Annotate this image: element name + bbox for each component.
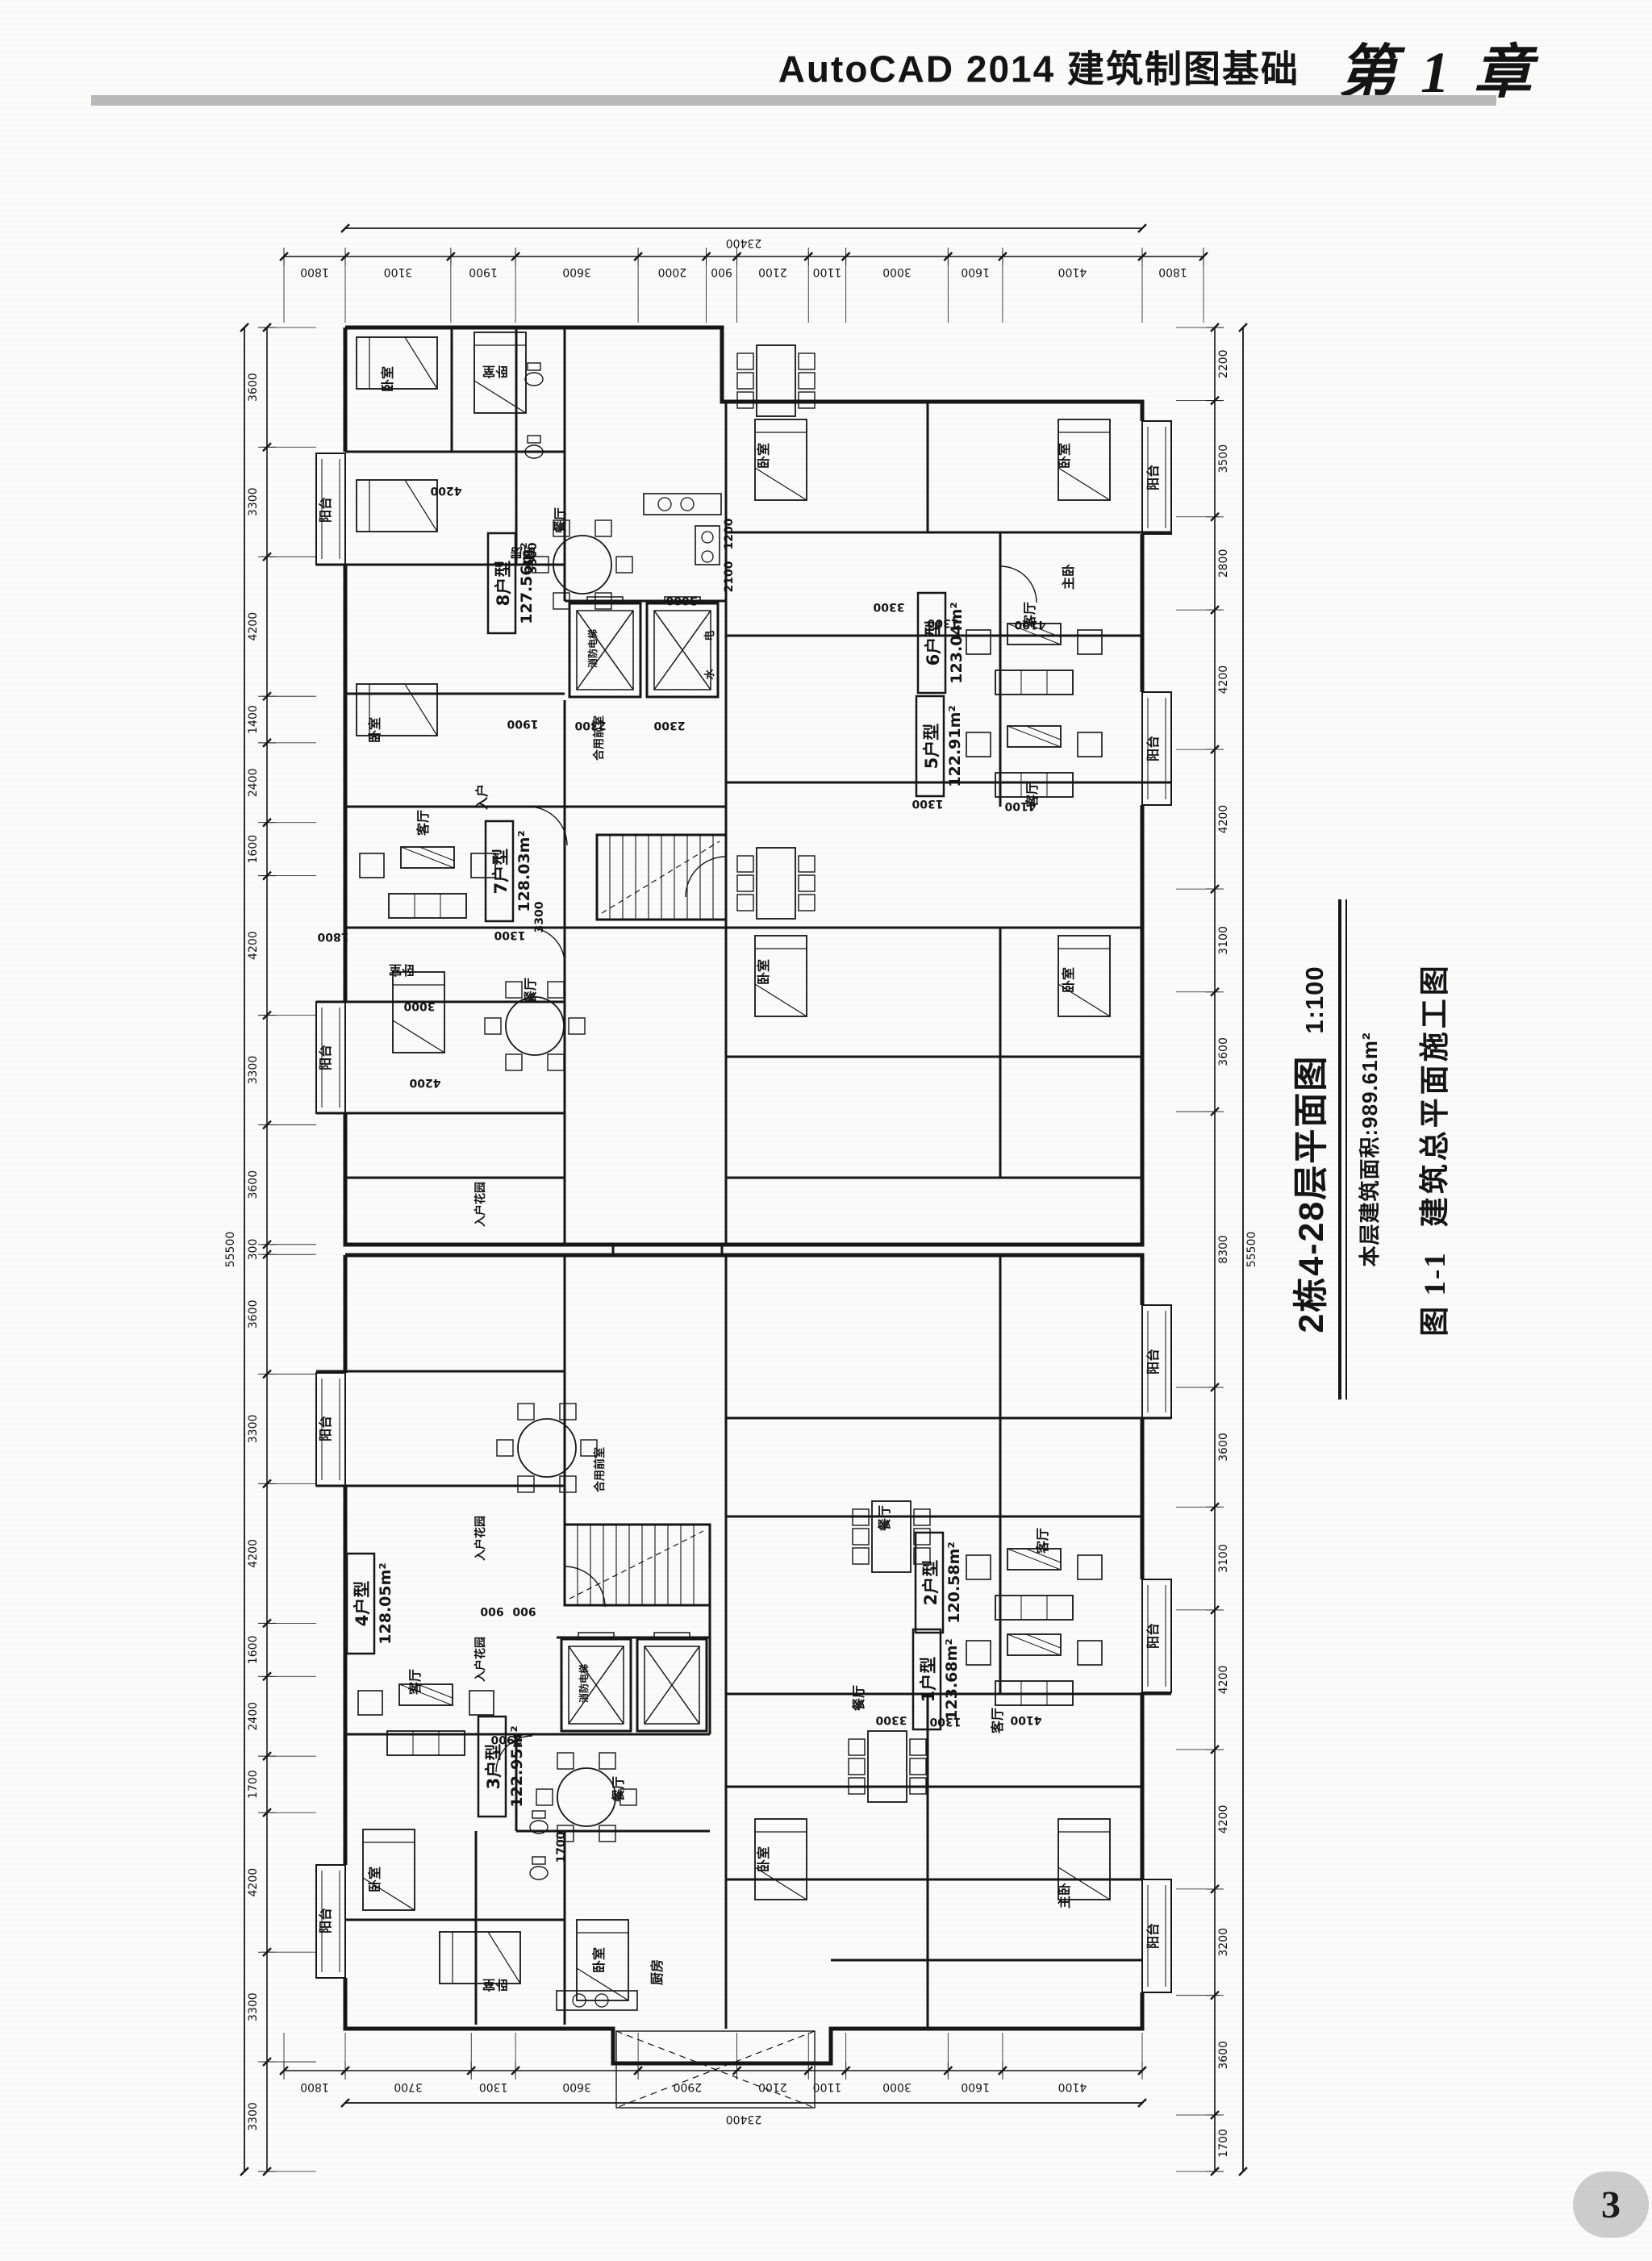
- svg-text:3200: 3200: [1217, 1928, 1230, 1957]
- svg-text:2900: 2900: [490, 1733, 522, 1746]
- figure-area: 1800310019003600200090021001100300016004…: [0, 0, 1652, 2261]
- svg-text:1800: 1800: [300, 265, 329, 278]
- svg-text:阳台: 阳台: [318, 1045, 333, 1070]
- svg-text:1100: 1100: [813, 265, 842, 278]
- svg-text:客厅: 客厅: [407, 1669, 423, 1695]
- svg-text:8户型: 8户型: [494, 561, 513, 607]
- svg-text:3600: 3600: [1217, 2041, 1230, 2070]
- svg-text:入户花园: 入户花园: [473, 1182, 487, 1227]
- svg-text:123.68m²: 123.68m²: [943, 1638, 961, 1720]
- balconies: [316, 421, 1171, 1992]
- book-page: AutoCAD 2014 建筑制图基础第 1 章 180031001900360…: [0, 0, 1652, 2261]
- svg-text:主卧: 主卧: [1061, 564, 1076, 590]
- svg-text:卧室: 卧室: [756, 1846, 771, 1872]
- svg-text:餐厅: 餐厅: [553, 507, 568, 534]
- svg-text:3100: 3100: [1217, 926, 1230, 955]
- svg-text:入户: 入户: [474, 784, 490, 810]
- svg-text:3100: 3100: [384, 265, 413, 278]
- svg-text:2200: 2200: [1217, 349, 1230, 378]
- svg-text:3300: 3300: [873, 600, 904, 613]
- svg-text:餐厅: 餐厅: [851, 1685, 866, 1712]
- svg-text:23400: 23400: [726, 2113, 762, 2125]
- svg-text:7户型: 7户型: [491, 849, 511, 895]
- svg-text:主卧: 主卧: [1057, 1883, 1072, 1909]
- svg-text:厨房: 厨房: [649, 1959, 665, 1985]
- svg-text:3300: 3300: [247, 2102, 260, 2131]
- svg-text:4100: 4100: [1010, 1713, 1041, 1726]
- svg-text:1600: 1600: [247, 1636, 260, 1665]
- svg-text:合用前室: 合用前室: [593, 1447, 607, 1492]
- svg-text:4200: 4200: [1217, 665, 1230, 695]
- svg-text:1300: 1300: [912, 797, 943, 810]
- svg-text:4100: 4100: [1058, 265, 1087, 278]
- svg-text:卧室: 卧室: [1057, 443, 1072, 469]
- figure-caption-text: 建筑总平面施工图: [1419, 962, 1452, 1227]
- svg-text:卧室: 卧室: [482, 1977, 508, 1992]
- svg-text:900: 900: [512, 1604, 536, 1617]
- svg-text:1700: 1700: [555, 1831, 568, 1863]
- svg-text:55500: 55500: [1245, 1232, 1258, 1268]
- svg-text:3000: 3000: [403, 999, 435, 1012]
- svg-text:阳台: 阳台: [318, 497, 333, 523]
- svg-text:3600: 3600: [247, 1299, 260, 1329]
- svg-text:3300: 3300: [527, 542, 540, 574]
- svg-text:900: 900: [711, 265, 732, 278]
- figure-title: 2栋4-28层平面图1:100: [1283, 899, 1333, 1400]
- svg-text:4200: 4200: [1217, 1805, 1230, 1834]
- svg-text:1600: 1600: [961, 265, 990, 278]
- svg-text:3600: 3600: [562, 265, 591, 278]
- svg-text:300: 300: [247, 1239, 260, 1261]
- svg-text:3300: 3300: [875, 1713, 907, 1726]
- svg-text:入户花园: 入户花园: [473, 1516, 487, 1561]
- svg-text:卧室: 卧室: [591, 1947, 607, 1973]
- page-number-badge: 3: [1573, 2171, 1649, 2238]
- svg-text:2户型: 2户型: [921, 1560, 941, 1606]
- svg-text:卧室: 卧室: [756, 959, 771, 985]
- svg-text:客厅: 客厅: [1035, 1528, 1050, 1554]
- svg-text:3600: 3600: [1217, 1433, 1230, 1462]
- svg-text:餐厅: 餐厅: [523, 978, 538, 1004]
- svg-text:卧室: 卧室: [367, 717, 382, 743]
- svg-text:1900: 1900: [469, 265, 498, 278]
- svg-text:4200: 4200: [409, 1076, 440, 1089]
- svg-text:卧室: 卧室: [1061, 967, 1076, 993]
- svg-text:3100: 3100: [1217, 1544, 1230, 1573]
- svg-text:4200: 4200: [430, 484, 461, 497]
- interior-walls: [316, 327, 1171, 2029]
- svg-text:1900: 1900: [507, 717, 538, 730]
- svg-text:2100: 2100: [723, 561, 736, 592]
- svg-text:2900: 2900: [674, 2080, 703, 2093]
- svg-text:消防电梯: 消防电梯: [578, 1664, 590, 1703]
- svg-text:4200: 4200: [247, 931, 260, 960]
- page-number: 3: [1601, 2183, 1621, 2227]
- svg-text:2100: 2100: [758, 2080, 787, 2093]
- figure-caption: 图 1-1建筑总平面施工图: [1410, 891, 1454, 1408]
- svg-text:1800: 1800: [317, 930, 348, 943]
- svg-text:55500: 55500: [224, 1232, 237, 1268]
- svg-text:卧室: 卧室: [367, 1867, 382, 1892]
- svg-text:4100: 4100: [1004, 799, 1036, 812]
- svg-text:阳台: 阳台: [1145, 1349, 1161, 1375]
- svg-text:2100: 2100: [758, 265, 787, 278]
- svg-text:阳台: 阳台: [1145, 736, 1161, 761]
- svg-text:4100: 4100: [1058, 2080, 1087, 2093]
- figure-title-text: 2栋4-28层平面图: [1292, 1055, 1331, 1333]
- svg-text:客厅: 客厅: [415, 810, 431, 836]
- svg-text:2300: 2300: [574, 719, 606, 732]
- svg-text:1200: 1200: [723, 518, 736, 549]
- figure-area-note: 本层建筑面积:989.61m²: [1354, 899, 1383, 1400]
- svg-text:3600: 3600: [247, 373, 260, 402]
- svg-text:3户型: 3户型: [484, 1744, 503, 1790]
- svg-text:120.58m²: 120.58m²: [945, 1541, 963, 1623]
- svg-text:3300: 3300: [247, 487, 260, 516]
- svg-text:水: 水: [703, 669, 716, 680]
- svg-text:3000: 3000: [882, 265, 912, 278]
- svg-text:4200: 4200: [1217, 1666, 1230, 1695]
- svg-text:4200: 4200: [247, 1868, 260, 1897]
- svg-text:8300: 8300: [1217, 1235, 1230, 1264]
- svg-text:128.05m²: 128.05m²: [377, 1562, 394, 1644]
- svg-text:1300: 1300: [929, 1715, 961, 1728]
- svg-text:123.04m²: 123.04m²: [948, 602, 966, 683]
- svg-text:1300: 1300: [479, 2080, 508, 2093]
- svg-text:1700: 1700: [247, 1770, 260, 1799]
- svg-text:5户型: 5户型: [922, 724, 941, 770]
- title-underline: [1338, 899, 1347, 1400]
- svg-text:阳台: 阳台: [318, 1416, 333, 1441]
- svg-text:入户花园: 入户花园: [473, 1637, 487, 1682]
- svg-text:3000: 3000: [665, 594, 697, 607]
- svg-text:卧室: 卧室: [389, 962, 415, 978]
- svg-text:2000: 2000: [658, 265, 687, 278]
- svg-text:3600: 3600: [247, 1170, 260, 1199]
- svg-text:客厅: 客厅: [990, 1708, 1005, 1733]
- svg-text:卧室: 卧室: [380, 366, 395, 392]
- svg-text:电: 电: [703, 630, 716, 640]
- svg-text:3700: 3700: [394, 2080, 423, 2093]
- svg-text:4200: 4200: [247, 1539, 260, 1568]
- svg-text:3600: 3600: [562, 2080, 591, 2093]
- figure-number: 图 1-1: [1419, 1251, 1452, 1337]
- building-outline: [345, 327, 1142, 2063]
- svg-text:餐厅: 餐厅: [611, 1776, 626, 1803]
- floor-plan-drawing: 1800310019003600200090021001100300016004…: [0, 0, 1652, 2261]
- svg-text:餐厅: 餐厅: [877, 1505, 892, 1532]
- svg-text:4100: 4100: [1014, 618, 1045, 631]
- svg-text:消防电梯: 消防电梯: [586, 629, 599, 668]
- svg-text:2300: 2300: [653, 719, 685, 732]
- svg-text:阳台: 阳台: [1145, 465, 1161, 490]
- svg-text:900: 900: [480, 1604, 503, 1617]
- svg-text:1700: 1700: [1217, 2129, 1230, 2158]
- svg-text:4200: 4200: [1217, 805, 1230, 834]
- svg-text:1600: 1600: [961, 2080, 990, 2093]
- svg-text:122.91m²: 122.91m²: [946, 705, 964, 786]
- figure-scale: 1:100: [1300, 966, 1329, 1033]
- svg-text:2800: 2800: [1217, 549, 1230, 578]
- svg-text:4户型: 4户型: [353, 1581, 372, 1627]
- svg-text:2400: 2400: [247, 768, 260, 797]
- svg-text:卧室: 卧室: [482, 364, 508, 379]
- svg-text:1800: 1800: [1158, 265, 1187, 278]
- svg-text:3300: 3300: [247, 1415, 260, 1444]
- svg-text:卧室: 卧室: [756, 443, 771, 469]
- svg-text:4200: 4200: [247, 612, 260, 641]
- svg-text:3500: 3500: [1217, 444, 1230, 473]
- svg-text:128.03m²: 128.03m²: [515, 830, 533, 911]
- svg-text:1100: 1100: [813, 2080, 842, 2093]
- figure-caption-block: 图 1-1建筑总平面施工图: [1410, 891, 1454, 1408]
- svg-text:3300: 3300: [533, 901, 546, 932]
- svg-text:1400: 1400: [247, 705, 260, 734]
- svg-text:阳台: 阳台: [1145, 1923, 1161, 1949]
- svg-text:1户型: 1户型: [919, 1657, 938, 1703]
- svg-text:1600: 1600: [247, 835, 260, 864]
- svg-text:3300: 3300: [247, 1992, 260, 2021]
- svg-text:1300: 1300: [494, 928, 525, 941]
- svg-text:23400: 23400: [726, 236, 762, 249]
- svg-text:3600: 3600: [1217, 1037, 1230, 1066]
- svg-text:1300: 1300: [927, 616, 958, 629]
- svg-text:3000: 3000: [882, 2080, 912, 2093]
- svg-text:阳台: 阳台: [318, 1908, 333, 1934]
- svg-text:阳台: 阳台: [1145, 1623, 1161, 1649]
- figure-title-block: 2栋4-28层平面图1:100 本层建筑面积:989.61m²: [1283, 899, 1383, 1400]
- svg-text:3300: 3300: [247, 1056, 260, 1085]
- svg-text:1800: 1800: [300, 2080, 329, 2093]
- svg-text:2400: 2400: [247, 1702, 260, 1731]
